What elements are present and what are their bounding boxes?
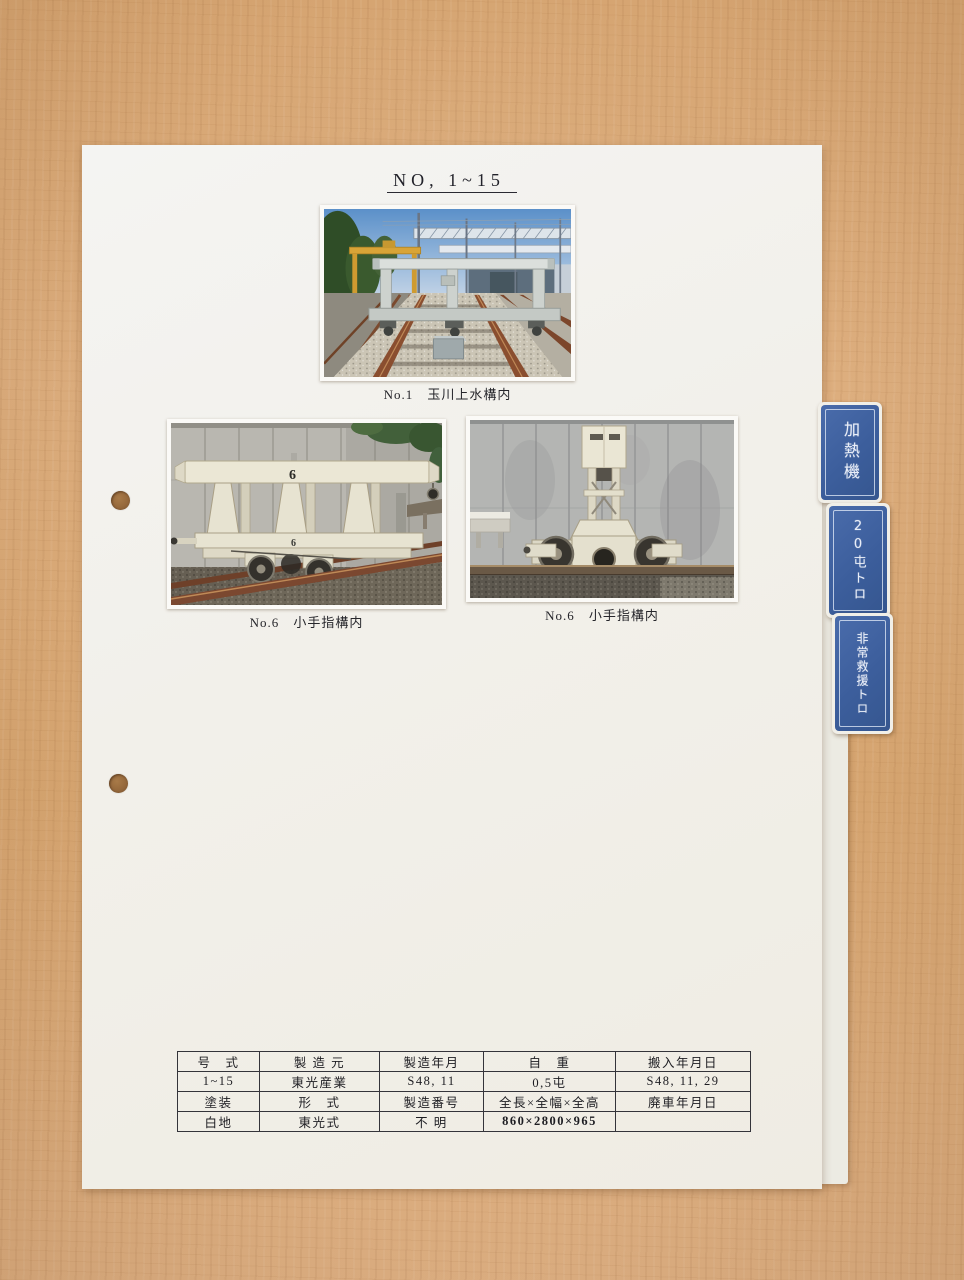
spec-cell: 白地 (178, 1112, 260, 1132)
spec-cell: 東光産業 (260, 1072, 380, 1092)
index-tab-face: 加熱機 (821, 405, 879, 500)
caption-number: No.1 (384, 387, 414, 402)
index-tab-label: 非常救援トロ (854, 632, 871, 716)
photo-trolley-end-caption: No.6小手指構内 (466, 605, 738, 624)
spec-cell: 製造番号 (380, 1092, 484, 1112)
trolley-number-chassis: 6 (291, 538, 296, 549)
photo-figure-trolley-end: No.6小手指構内 (466, 416, 738, 624)
spec-cell: 0,5屯 (484, 1072, 616, 1092)
index-tab-face: 20屯トロ (829, 506, 887, 615)
spec-cell-dimensions: 860×2800×965 (484, 1112, 616, 1132)
index-tab-rescue-toro: 非常救援トロ (832, 613, 893, 734)
caption-place: 玉川上水構内 (427, 387, 511, 402)
spec-cell: 搬入年月日 (616, 1052, 751, 1072)
spec-cell: 自 重 (484, 1052, 616, 1072)
spec-row-1: 号 式 製 造 元 製造年月 自 重 搬入年月日 (178, 1052, 751, 1072)
page-title-text: NO, 1~15 (387, 170, 517, 193)
desk-scene: { "page": { "title": "NO, 1~15" }, "phot… (0, 0, 964, 1280)
spec-cell: 形 式 (260, 1092, 380, 1112)
photo-railyard (320, 205, 575, 381)
spec-row-2: 1~15 東光産業 S48, 11 0,5屯 S48, 11, 29 (178, 1072, 751, 1092)
spec-cell: 製 造 元 (260, 1052, 380, 1072)
spec-cell: 製造年月 (380, 1052, 484, 1072)
photo-figure-trolley-side: 6 6 No.6小手指構内 (167, 419, 446, 631)
photo-trolley-end-illustration (470, 420, 734, 598)
spec-cell: 号 式 (178, 1052, 260, 1072)
caption-number: No.6 (545, 608, 575, 623)
index-tab-20ton-toro: 20屯トロ (826, 503, 890, 618)
spec-cell: 東光式 (260, 1112, 380, 1132)
index-tab-face: 非常救援トロ (835, 616, 890, 731)
album-page: NO, 1~15 (82, 145, 822, 1189)
spec-table: 号 式 製 造 元 製造年月 自 重 搬入年月日 1~15 東光産業 S48, … (177, 1051, 751, 1132)
spec-cell (616, 1112, 751, 1132)
caption-place: 小手指構内 (589, 608, 659, 623)
photo-figure-railyard: No.1玉川上水構内 (320, 205, 575, 403)
photo-trolley-end (466, 416, 738, 602)
punch-hole-top (111, 491, 130, 510)
photo-railyard-illustration (324, 209, 571, 377)
spec-cell: 塗装 (178, 1092, 260, 1112)
spec-cell: 廃車年月日 (616, 1092, 751, 1112)
index-tab-label: 20屯トロ (849, 519, 868, 603)
spec-cell: S48, 11, 29 (616, 1072, 751, 1092)
page-title: NO, 1~15 (82, 170, 822, 191)
punch-hole-bottom (109, 774, 128, 793)
index-tab-kanetsuki: 加熱機 (818, 402, 882, 503)
index-tab-label: 加熱機 (838, 421, 862, 484)
caption-place: 小手指構内 (293, 615, 363, 630)
photo-trolley-side-illustration: 6 6 (171, 423, 442, 605)
spec-cell: 全長×全幅×全高 (484, 1092, 616, 1112)
spec-cell: S48, 11 (380, 1072, 484, 1092)
trolley-number-beam: 6 (289, 468, 296, 483)
spec-row-4: 白地 東光式 不 明 860×2800×965 (178, 1112, 751, 1132)
caption-number: No.6 (250, 615, 280, 630)
spec-row-3: 塗装 形 式 製造番号 全長×全幅×全高 廃車年月日 (178, 1092, 751, 1112)
photo-trolley-side: 6 6 (167, 419, 446, 609)
photo-railyard-caption: No.1玉川上水構内 (320, 384, 575, 403)
spec-cell: 不 明 (380, 1112, 484, 1132)
spec-cell: 1~15 (178, 1072, 260, 1092)
photo-trolley-side-caption: No.6小手指構内 (167, 612, 446, 631)
